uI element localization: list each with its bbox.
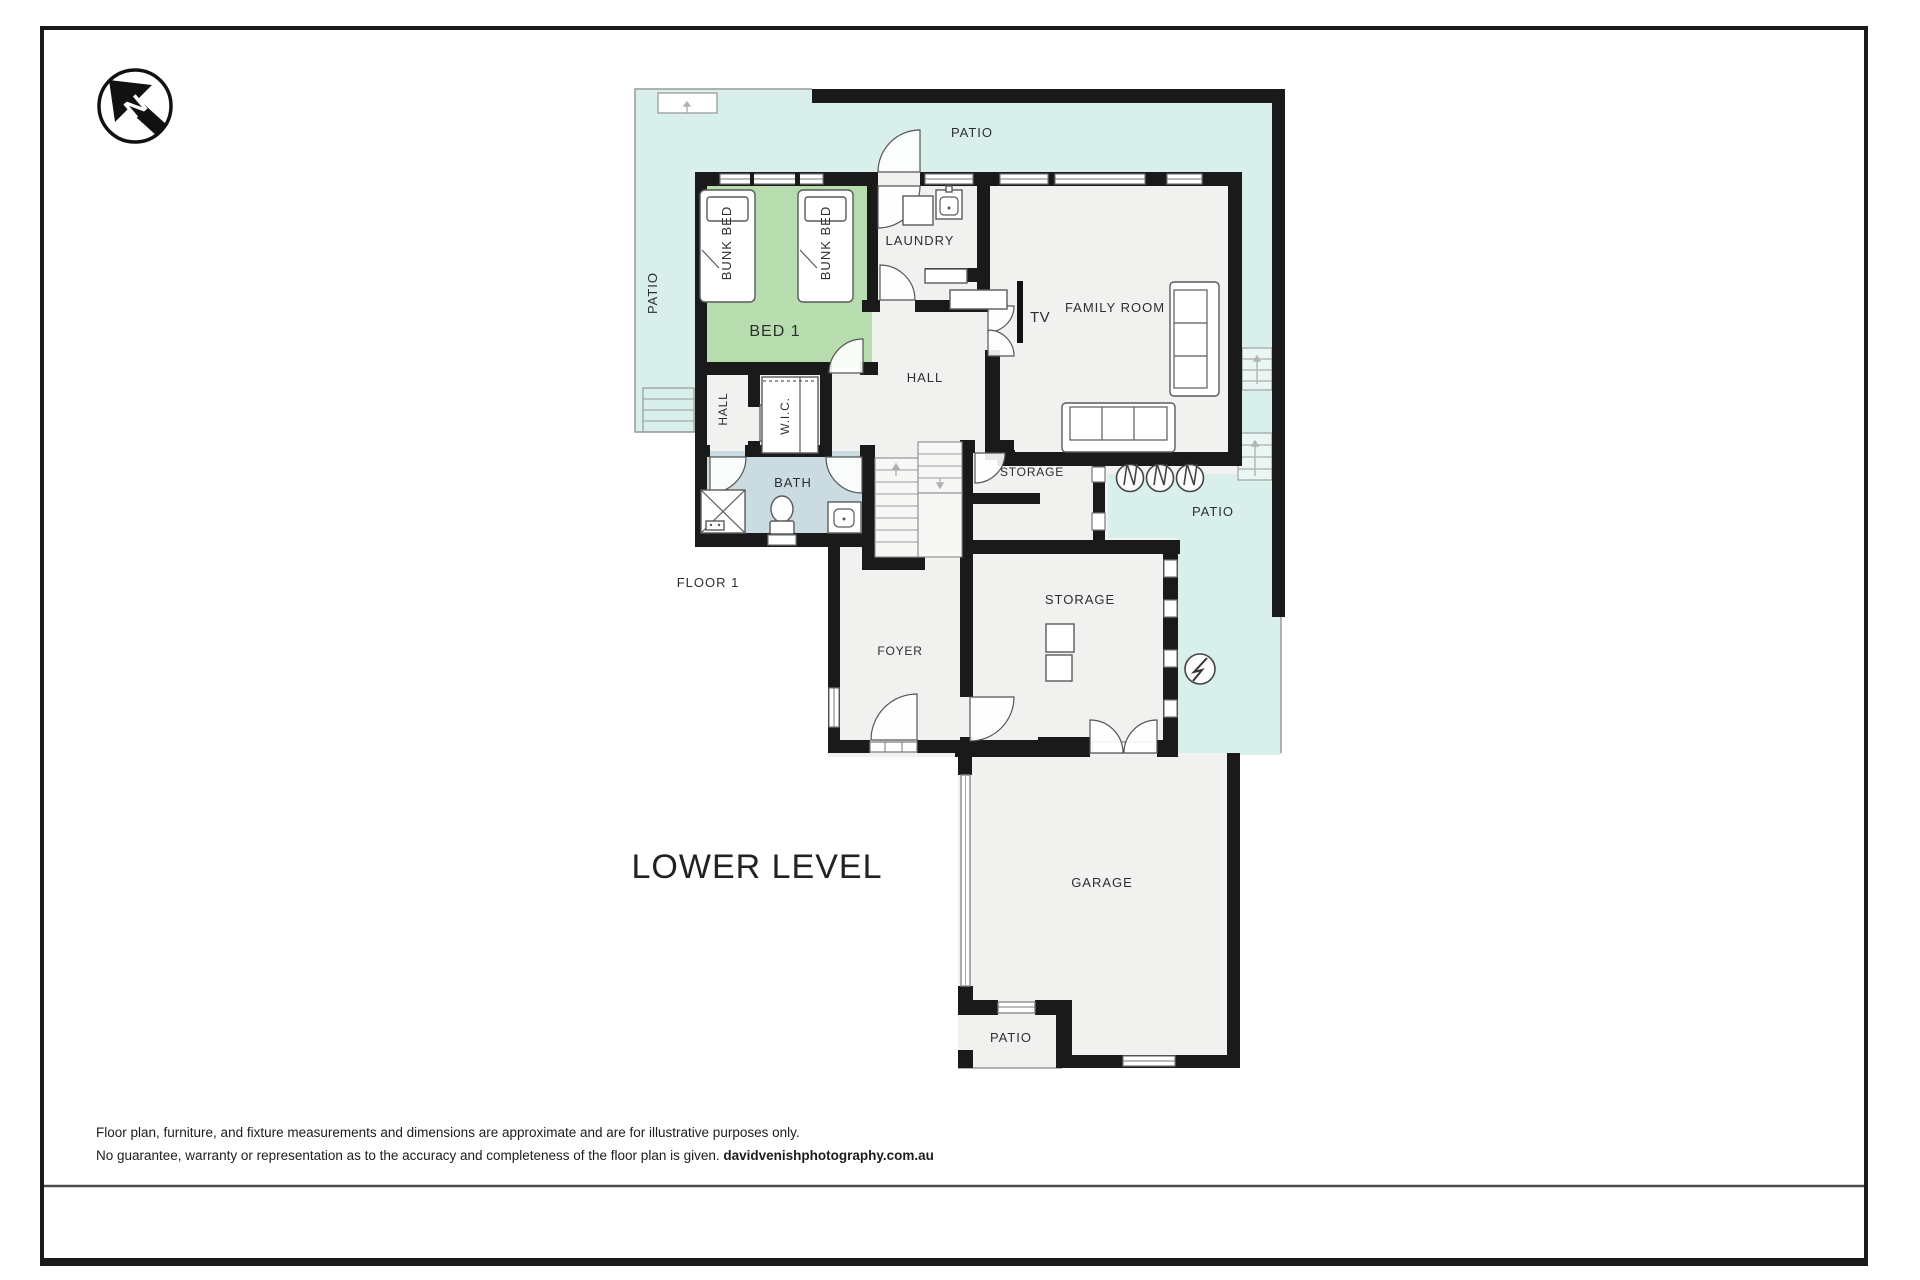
label-patio-bottom: PATIO <box>990 1030 1032 1045</box>
label-bath: BATH <box>774 475 812 490</box>
disclaimer-line2: No guarantee, warranty or representation… <box>96 1148 934 1163</box>
staircase <box>875 442 962 557</box>
label-bed1: BED 1 <box>749 323 800 340</box>
label-hall: HALL <box>907 370 944 385</box>
label-foyer: FOYER <box>877 644 922 658</box>
label-floor: FLOOR 1 <box>677 575 740 590</box>
label-garage: GARAGE <box>1071 875 1133 890</box>
laundry-sink-icon <box>936 186 962 219</box>
label-laundry: LAUNDRY <box>886 233 955 248</box>
disclaimer-line1: Floor plan, furniture, and fixture measu… <box>96 1125 800 1140</box>
bath-sink-icon <box>828 502 861 533</box>
washer-icon <box>903 196 933 225</box>
label-wic: W.I.C. <box>778 397 792 434</box>
electrical-meter-icon <box>1185 654 1215 684</box>
footer: Floor plan, furniture, and fixture measu… <box>96 1125 934 1163</box>
credit-link: davidvenishphotography.com.au <box>723 1148 934 1163</box>
label-storage-lower: STORAGE <box>1045 592 1115 607</box>
shower-icon <box>701 490 745 533</box>
toilet-icon <box>770 496 794 534</box>
label-storage-upper: STORAGE <box>1000 465 1064 479</box>
label-patio-top: PATIO <box>951 125 993 140</box>
laundry-counter <box>925 269 967 283</box>
patio-lower-strip <box>1178 540 1281 755</box>
label-bunk-bed-2: BUNK BED <box>818 206 833 280</box>
storage-box <box>1046 624 1074 652</box>
page-title: LOWER LEVEL <box>632 848 883 886</box>
patio-right-strip <box>1242 103 1272 475</box>
storage-box <box>1046 655 1072 681</box>
sofa-vertical <box>1170 282 1219 396</box>
north-compass-icon: N <box>99 70 171 142</box>
front-door-threshold <box>870 742 917 752</box>
label-bunk-bed-1: BUNK BED <box>719 206 734 280</box>
hot-water-unit-icons <box>1117 464 1204 492</box>
tv-icon <box>1017 281 1023 343</box>
room-garage <box>958 753 1240 1068</box>
tv-cabinet <box>950 290 1007 309</box>
floor-plan-svg: N <box>0 0 1920 1280</box>
floor-plan-page: N <box>0 0 1920 1280</box>
label-patio-right: PATIO <box>1192 504 1234 519</box>
label-hall-small: HALL <box>716 392 730 425</box>
sofa-horizontal <box>1062 403 1175 452</box>
label-family-room: FAMILY ROOM <box>1065 300 1165 315</box>
label-patio-left: PATIO <box>645 272 660 314</box>
label-tv: TV <box>1030 309 1050 326</box>
